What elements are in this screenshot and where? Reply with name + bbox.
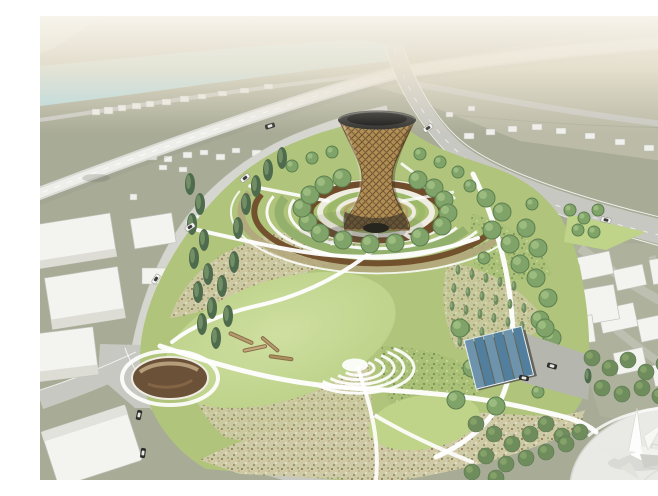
round-planter <box>132 357 208 399</box>
overpass-shadow <box>82 174 110 182</box>
architectural-rendering <box>40 16 658 480</box>
rendering-canvas <box>40 16 658 480</box>
atmospheric-haze <box>40 16 658 134</box>
tower-entrance <box>363 223 389 233</box>
